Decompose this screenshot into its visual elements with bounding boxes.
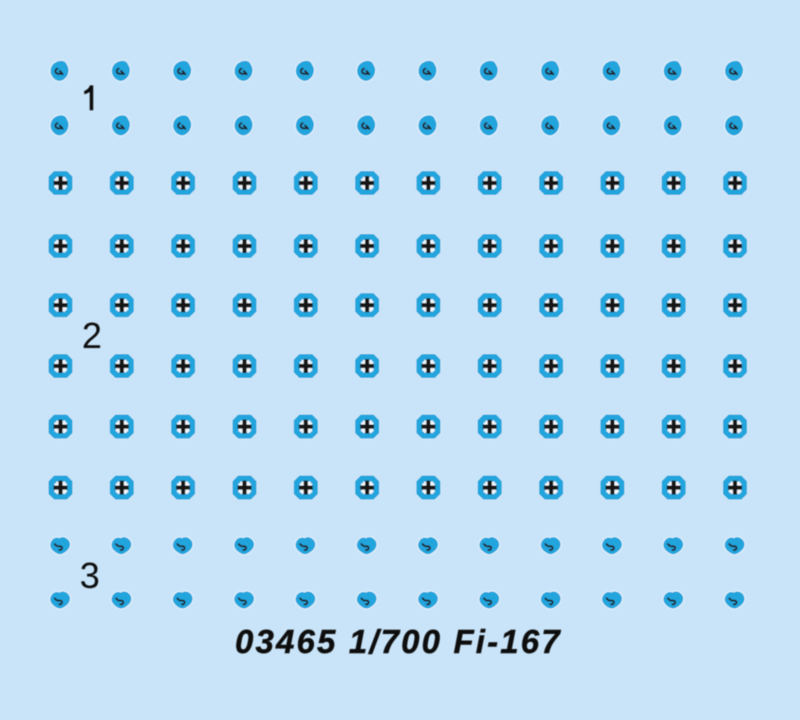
svg-text:2: 2 bbox=[82, 315, 102, 356]
svg-text:03465 1/700 Fi-167: 03465 1/700 Fi-167 bbox=[235, 623, 562, 660]
svg-text:3: 3 bbox=[80, 555, 100, 596]
